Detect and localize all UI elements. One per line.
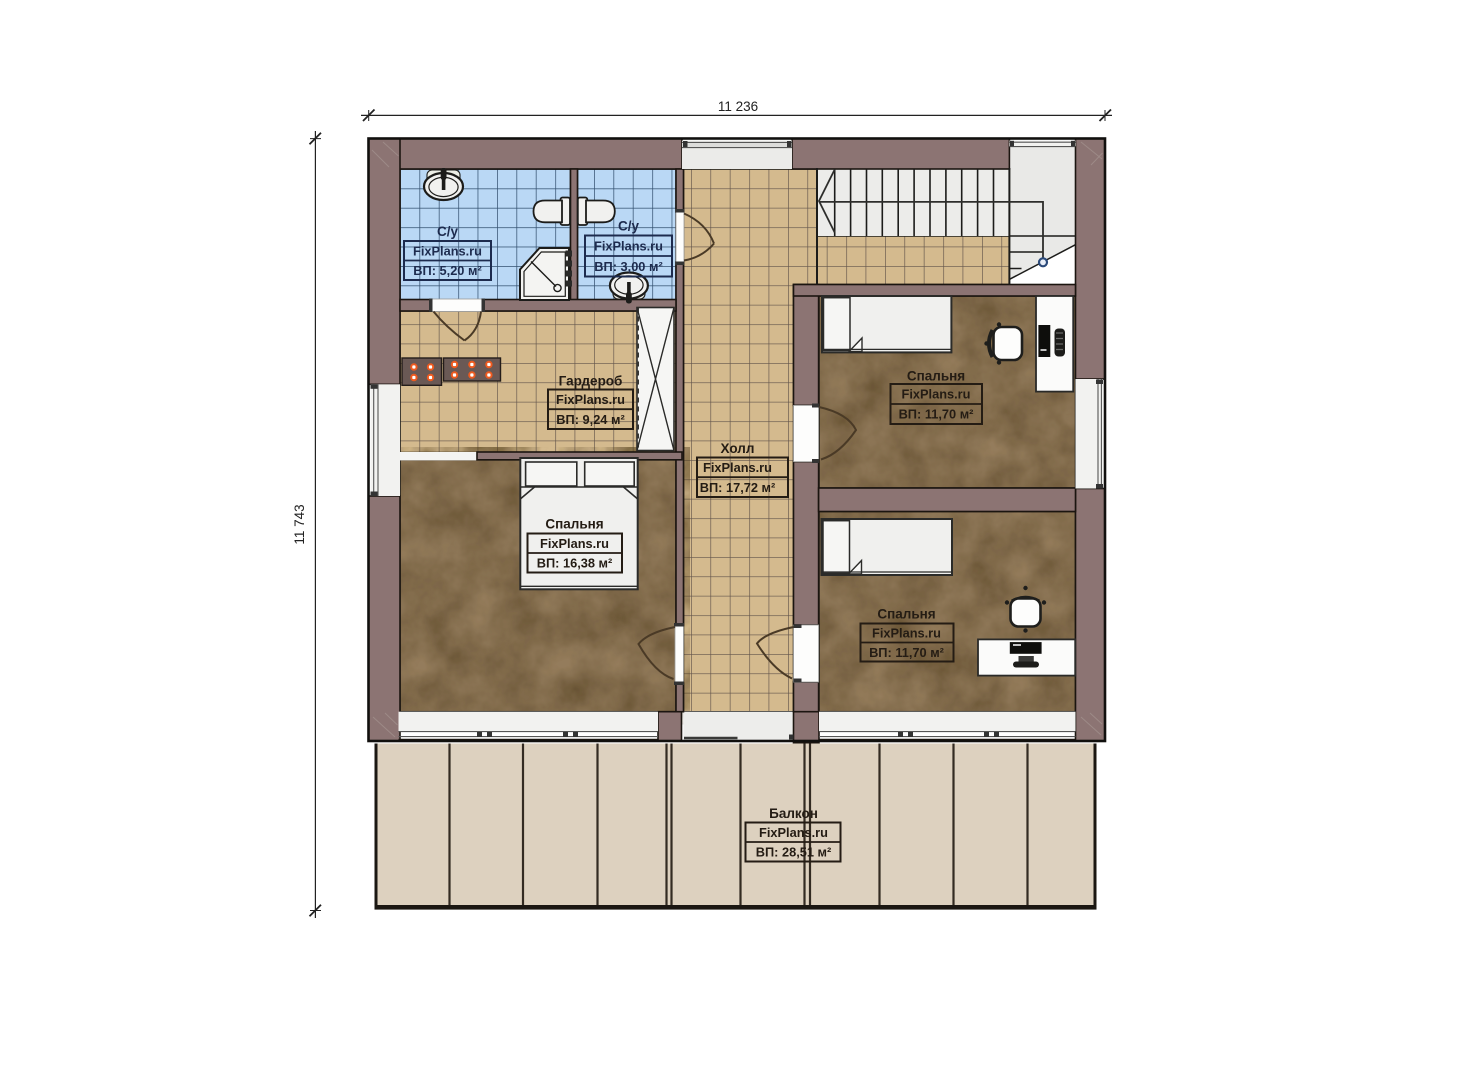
svg-text:Спальня: Спальня [877,607,935,622]
svg-text:FixPlans.ru: FixPlans.ru [902,387,971,402]
svg-text:FixPlans.ru: FixPlans.ru [872,626,941,641]
svg-text:Балкон: Балкон [769,806,818,821]
svg-text:Спальня: Спальня [545,517,603,532]
svg-text:Холл: Холл [721,441,755,456]
svg-text:ВП: 11,70 м²: ВП: 11,70 м² [899,407,974,422]
svg-text:FixPlans.ru: FixPlans.ru [556,392,625,407]
svg-text:ВП: 11,70 м²: ВП: 11,70 м² [869,645,944,660]
svg-text:ВП: 3,00 м²: ВП: 3,00 м² [594,259,662,274]
svg-text:Спальня: Спальня [907,369,965,384]
svg-text:FixPlans.ru: FixPlans.ru [540,536,609,551]
svg-text:11 743: 11 743 [292,504,307,544]
svg-text:ВП: 9,24 м²: ВП: 9,24 м² [556,412,624,427]
svg-text:С/у: С/у [437,224,459,239]
svg-text:11 236: 11 236 [718,99,758,114]
svg-text:FixPlans.ru: FixPlans.ru [759,825,828,840]
svg-text:ВП: 5,20 м²: ВП: 5,20 м² [413,263,481,278]
svg-text:ВП: 16,38 м²: ВП: 16,38 м² [537,556,613,571]
svg-text:ВП: 28,51 м²: ВП: 28,51 м² [756,845,832,860]
svg-text:FixPlans.ru: FixPlans.ru [703,460,772,475]
svg-text:С/у: С/у [618,219,640,234]
svg-text:Гардероб: Гардероб [559,374,623,389]
svg-text:ВП: 17,72 м²: ВП: 17,72 м² [700,480,776,495]
svg-text:FixPlans.ru: FixPlans.ru [413,244,482,259]
svg-text:FixPlans.ru: FixPlans.ru [594,239,663,254]
